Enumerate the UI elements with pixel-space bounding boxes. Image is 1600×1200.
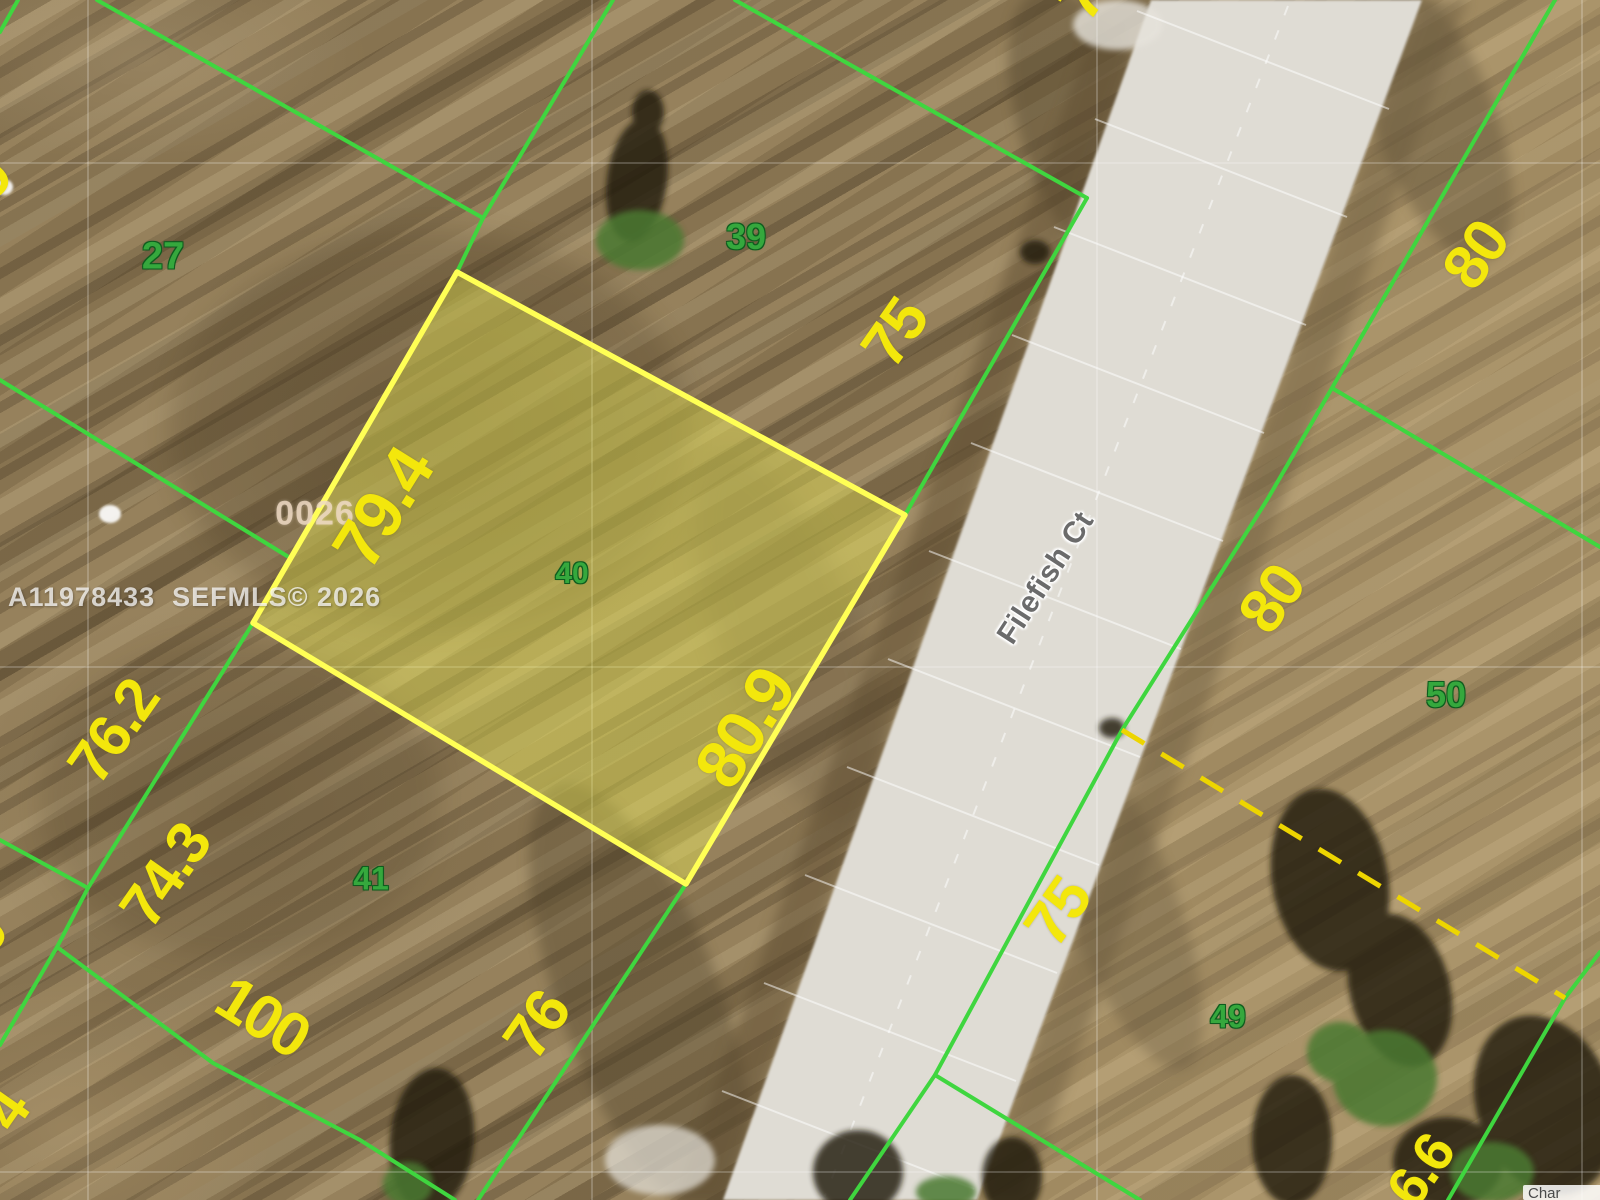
lot-number-39: 39 bbox=[726, 216, 766, 258]
mls-watermark: A11978433 SEFMLS© 2026 bbox=[8, 582, 381, 613]
lot-number-49: 49 bbox=[1210, 999, 1246, 1036]
aerial-plat-map[interactable]: A11978433 SEFMLS© 2026 0026 Filefish Ct … bbox=[0, 0, 1600, 1200]
tree-foliage bbox=[596, 210, 684, 270]
map-attribution[interactable]: Char bbox=[1523, 1185, 1600, 1200]
lot-number-41: 41 bbox=[353, 861, 389, 898]
boundary-line bbox=[97, 0, 483, 218]
white-ground-objects bbox=[0, 179, 121, 523]
lot-number-27: 27 bbox=[142, 236, 184, 279]
lot-number-40: 40 bbox=[555, 557, 588, 591]
lot-number-50: 50 bbox=[1426, 674, 1466, 716]
bush bbox=[1020, 240, 1050, 264]
